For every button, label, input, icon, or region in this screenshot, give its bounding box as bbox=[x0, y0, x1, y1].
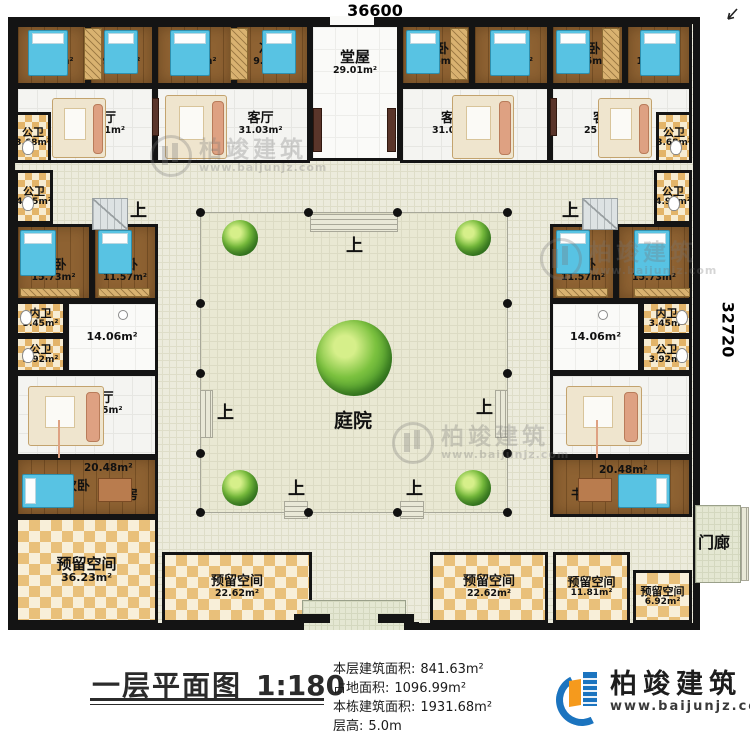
stat-label: 占地面积: bbox=[333, 681, 389, 696]
cabinet-icon bbox=[313, 108, 322, 152]
sofa-set-icon bbox=[165, 95, 227, 159]
wardrobe-icon bbox=[556, 288, 608, 297]
room-reserved-space: 预留空间22.62m² bbox=[430, 552, 548, 623]
brand-name: 柏竣建筑 bbox=[610, 670, 750, 699]
tree-icon bbox=[455, 470, 491, 506]
room-area: 11.57m² bbox=[103, 273, 147, 283]
stat-label: 本栋建筑面积: bbox=[333, 700, 415, 715]
bed-icon bbox=[28, 30, 68, 76]
courtyard-steps bbox=[495, 390, 508, 438]
bed-icon bbox=[490, 30, 530, 76]
dimension-right: 32720 bbox=[719, 292, 738, 368]
room-public-bathroom: 公卫3.68m² bbox=[15, 112, 51, 163]
up-label: 上 bbox=[476, 400, 493, 417]
logo-orange-tower bbox=[569, 679, 581, 707]
courtyard-steps bbox=[310, 214, 398, 232]
room-area: 20.48m² bbox=[84, 462, 133, 474]
sofa-set-icon bbox=[452, 95, 514, 159]
title-underline-thin bbox=[90, 704, 324, 705]
stat-label: 本层建筑面积: bbox=[333, 662, 415, 677]
cabinet-icon bbox=[387, 108, 396, 152]
brand-logo: 柏竣建筑 www.baijunjz.com bbox=[556, 666, 750, 718]
bed-icon bbox=[20, 230, 56, 276]
title-underline bbox=[90, 698, 324, 701]
stat-land-area: 占地面积:1096.99m² bbox=[333, 680, 492, 699]
bed-icon bbox=[556, 230, 590, 274]
stat-value: 1931.68m² bbox=[420, 700, 492, 715]
room-area: 22.62m² bbox=[467, 589, 511, 599]
room-public-bathroom: 公卫4.95m² bbox=[15, 170, 53, 224]
wardrobe-icon bbox=[634, 288, 690, 297]
porch-label: 门廊 bbox=[698, 529, 730, 553]
wardrobe-icon bbox=[20, 288, 80, 297]
bed-icon bbox=[556, 30, 590, 74]
brand-logo-icon bbox=[556, 666, 602, 718]
column-dots bbox=[196, 208, 205, 217]
bed-icon bbox=[104, 30, 138, 74]
bed-icon bbox=[618, 474, 670, 508]
room-name: 预留空间 bbox=[56, 556, 116, 573]
stat-value: 1096.99m² bbox=[394, 681, 466, 696]
room-area: 22.62m² bbox=[215, 589, 259, 599]
room-area: 14.06m² bbox=[86, 331, 137, 343]
room-area: 31.03m² bbox=[238, 126, 282, 136]
stat-floor-height: 层高:5.0m bbox=[333, 718, 492, 737]
bed-icon bbox=[22, 474, 74, 508]
tree-icon bbox=[222, 220, 258, 256]
toilet-icon bbox=[22, 348, 34, 363]
dimension-top: 36600 bbox=[340, 1, 410, 20]
room-name: 客厅 bbox=[247, 112, 273, 126]
room-name: 内卫 bbox=[30, 308, 52, 320]
sink-icon bbox=[118, 310, 128, 320]
room-area: 11.81m² bbox=[571, 589, 613, 599]
room-name: 堂屋 bbox=[340, 49, 370, 66]
room-name: 预留空间 bbox=[641, 586, 685, 598]
up-label: 上 bbox=[562, 203, 579, 220]
room-public-bathroom: 公卫3.68m² bbox=[656, 112, 692, 163]
room-area: 36.23m² bbox=[61, 572, 112, 584]
bed-icon bbox=[262, 30, 296, 74]
tree-icon bbox=[222, 470, 258, 506]
logo-swoosh bbox=[549, 667, 615, 733]
desk-icon bbox=[578, 478, 612, 502]
room-name: 预留空间 bbox=[463, 575, 515, 589]
up-label: 上 bbox=[346, 238, 363, 255]
toilet-icon bbox=[676, 348, 688, 363]
cabinet-icon bbox=[550, 98, 557, 136]
room-name: 预留空间 bbox=[211, 575, 263, 589]
toilet-icon bbox=[22, 140, 34, 155]
north-arrow-icon bbox=[722, 6, 740, 24]
courtyard-steps bbox=[200, 390, 213, 438]
staircase bbox=[582, 198, 618, 230]
bed-icon bbox=[170, 30, 210, 76]
courtyard-label: 庭院 bbox=[334, 406, 372, 433]
tree-icon bbox=[316, 320, 392, 396]
wardrobe-icon bbox=[602, 28, 620, 80]
room-area: 6.92m² bbox=[645, 598, 681, 608]
room-name: 内卫 bbox=[656, 308, 678, 320]
room-name: 公卫 bbox=[663, 127, 685, 139]
sofa-set-icon bbox=[52, 98, 106, 158]
room-reserved-space: 预留空间11.81m² bbox=[553, 552, 630, 623]
stat-building-area: 本栋建筑面积:1931.68m² bbox=[333, 699, 492, 718]
area-stats: 本层建筑面积:841.63m² 占地面积:1096.99m² 本栋建筑面积:19… bbox=[333, 661, 492, 736]
toilet-icon bbox=[670, 140, 682, 155]
stat-label: 层高: bbox=[333, 719, 363, 734]
toilet-icon bbox=[676, 310, 688, 325]
sink-icon bbox=[598, 310, 608, 320]
stat-floor-area: 本层建筑面积:841.63m² bbox=[333, 661, 492, 680]
wardrobe-icon bbox=[450, 28, 468, 80]
porch-steps bbox=[741, 507, 749, 581]
bed-icon bbox=[634, 230, 670, 276]
room-area: 29.01m² bbox=[333, 66, 377, 76]
room-reserved-space: 预留空间22.62m² bbox=[162, 552, 312, 623]
tree-icon bbox=[455, 220, 491, 256]
bed-icon bbox=[406, 30, 440, 74]
courtyard-steps bbox=[284, 501, 308, 519]
stat-value: 841.63m² bbox=[420, 662, 483, 677]
logo-blue-tower bbox=[583, 672, 597, 706]
room-reserved-space: 预留空间36.23m² bbox=[15, 517, 158, 623]
stat-value: 5.0m bbox=[368, 719, 401, 734]
sofa-set-icon bbox=[566, 386, 642, 446]
staircase bbox=[92, 198, 128, 230]
up-label: 上 bbox=[406, 481, 423, 498]
sofa-set-icon bbox=[28, 386, 104, 446]
bed-icon bbox=[640, 30, 680, 76]
room-name: 公卫 bbox=[22, 127, 44, 139]
desk-icon bbox=[98, 478, 132, 502]
room-name: 公卫 bbox=[656, 344, 678, 356]
up-label: 上 bbox=[217, 405, 234, 422]
sofa-set-icon bbox=[598, 98, 652, 158]
up-label: 上 bbox=[288, 481, 305, 498]
courtyard-steps bbox=[400, 501, 424, 519]
toilet-icon bbox=[20, 310, 32, 325]
bed-icon bbox=[98, 230, 132, 274]
cabinet-icon bbox=[152, 98, 159, 136]
room-area: 11.57m² bbox=[561, 273, 605, 283]
wardrobe-icon bbox=[84, 28, 102, 80]
brand-url: www.baijunjz.com bbox=[610, 700, 750, 714]
room-area: 14.06m² bbox=[570, 331, 621, 343]
toilet-icon bbox=[22, 196, 34, 211]
room-reserved-space: 预留空间6.92m² bbox=[633, 570, 692, 623]
toilet-icon bbox=[668, 196, 680, 211]
title-block: 一层平面图1:180 本层建筑面积:841.63m² 占地面积:1096.99m… bbox=[0, 630, 750, 741]
floor-plan-page: 36600 32720 次卧11.13m² 次卧9.35m² 次卧12.31m²… bbox=[0, 0, 750, 741]
wardrobe-icon bbox=[230, 28, 248, 80]
wardrobe-icon bbox=[98, 288, 150, 297]
up-label: 上 bbox=[130, 203, 147, 220]
